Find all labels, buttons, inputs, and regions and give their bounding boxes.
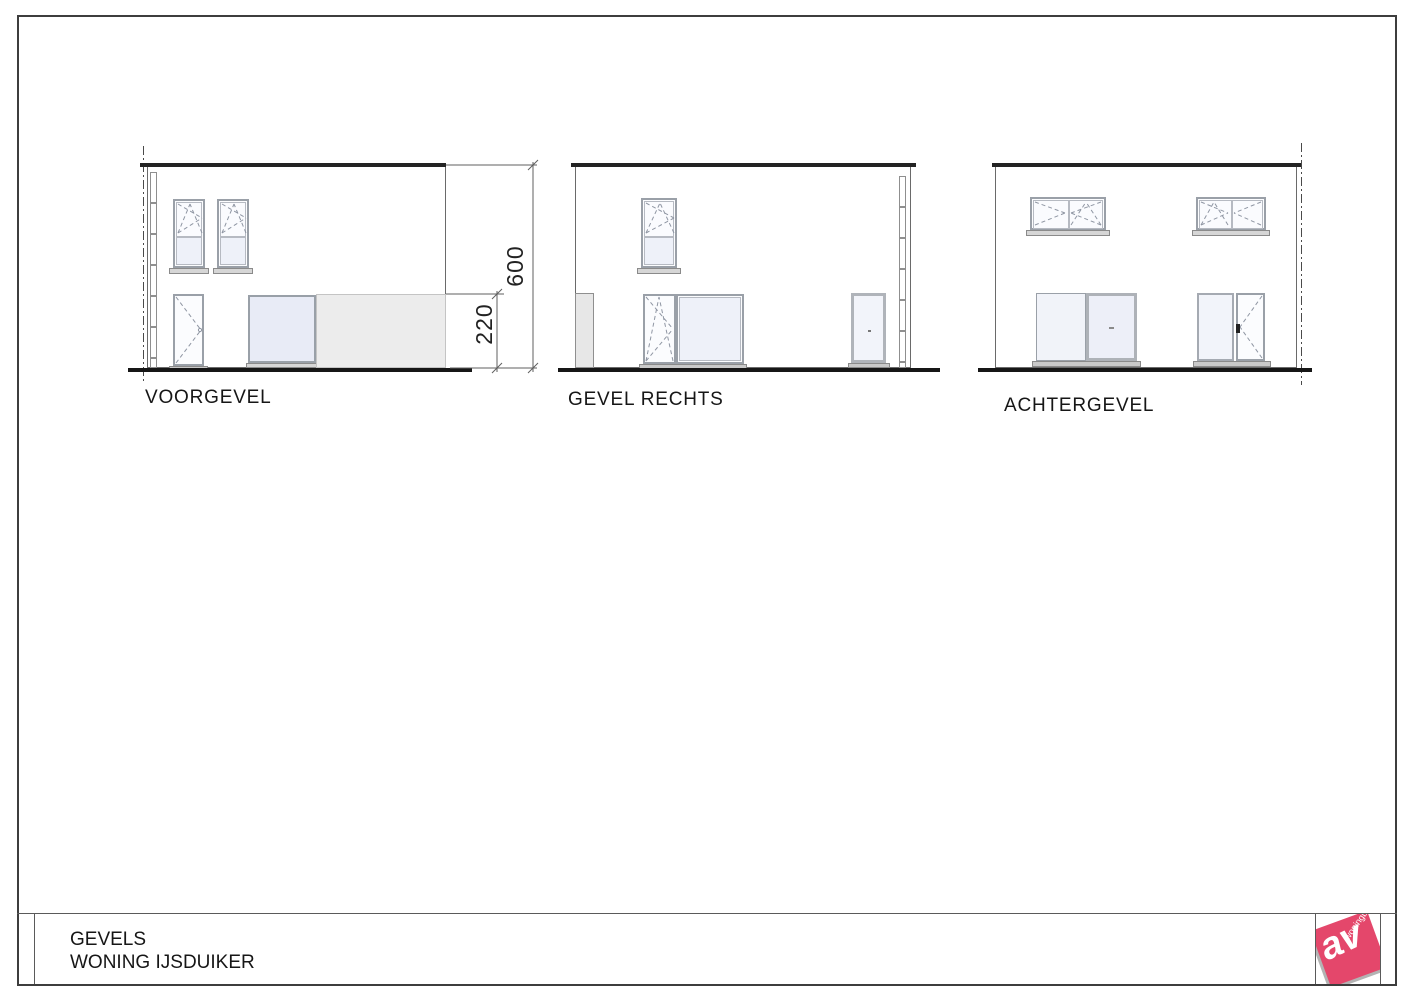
drainpipe [150, 172, 157, 368]
carport-wall-stub [575, 293, 594, 368]
sash-opening-symbol [1233, 201, 1262, 226]
window-sill [1192, 230, 1270, 236]
dimension-lower-height: 220 [471, 294, 495, 354]
front-door [173, 294, 204, 366]
title-block-divider [34, 913, 35, 984]
elevation-label-achtergevel: ACHTERGEVEL [1004, 395, 1154, 417]
company-logo: av woningbouw [1316, 914, 1380, 984]
upper-window [173, 199, 205, 268]
ground-line [558, 368, 940, 372]
door-handle [1109, 327, 1114, 329]
carport-area [316, 294, 446, 368]
back-door-side-panel [1197, 293, 1234, 361]
dimension-total-height: 600 [502, 236, 526, 296]
drawing-sheet: 600 220 VOORGEVEL [0, 0, 1414, 1000]
fixed-window [676, 294, 744, 364]
drawing-title: GEVELS [70, 928, 146, 951]
side-door [851, 293, 886, 363]
boundary-dashdot-line [1298, 143, 1306, 385]
sash-opening-symbol [1070, 201, 1102, 226]
sliding-door-fixed-panel [1036, 293, 1086, 361]
window-sill [213, 268, 253, 274]
roof-line [140, 163, 446, 167]
door-handle [868, 330, 871, 332]
title-block-top-line [17, 913, 1397, 914]
door-handle [1236, 324, 1240, 333]
upper-window [641, 198, 677, 268]
door-threshold [1032, 361, 1141, 367]
upper-window [217, 199, 249, 268]
window-sill [1026, 230, 1110, 236]
ground-line [128, 368, 472, 372]
garage-door [248, 295, 316, 363]
sash-opening-symbol [1200, 201, 1229, 226]
roof-line [571, 163, 916, 167]
upper-double-window [1030, 197, 1106, 230]
back-door [1236, 293, 1265, 361]
terrace-door [643, 294, 676, 364]
roof-line [992, 163, 1301, 167]
elevation-label-gevel-rechts: GEVEL RECHTS [568, 389, 724, 411]
window-sill [169, 268, 209, 274]
sliding-door-panel [1086, 293, 1137, 361]
ground-line [978, 368, 1312, 372]
door-threshold [1193, 361, 1271, 367]
upper-double-window [1196, 197, 1266, 230]
sash-opening-symbol [1034, 201, 1066, 226]
door-opening-symbol [1238, 295, 1263, 359]
sheet-border [17, 15, 1397, 986]
project-name: WONING IJSDUIKER [70, 951, 255, 974]
door-opening-symbol [645, 296, 674, 362]
title-block-divider [1380, 913, 1381, 984]
window-sill [637, 268, 681, 274]
sash-opening-symbol [645, 202, 675, 234]
sash-opening-symbol [221, 203, 247, 234]
sash-opening-symbol [177, 203, 203, 234]
drainpipe [899, 176, 906, 368]
door-opening-symbol [175, 296, 202, 364]
elevation-label-voorgevel: VOORGEVEL [145, 387, 272, 409]
